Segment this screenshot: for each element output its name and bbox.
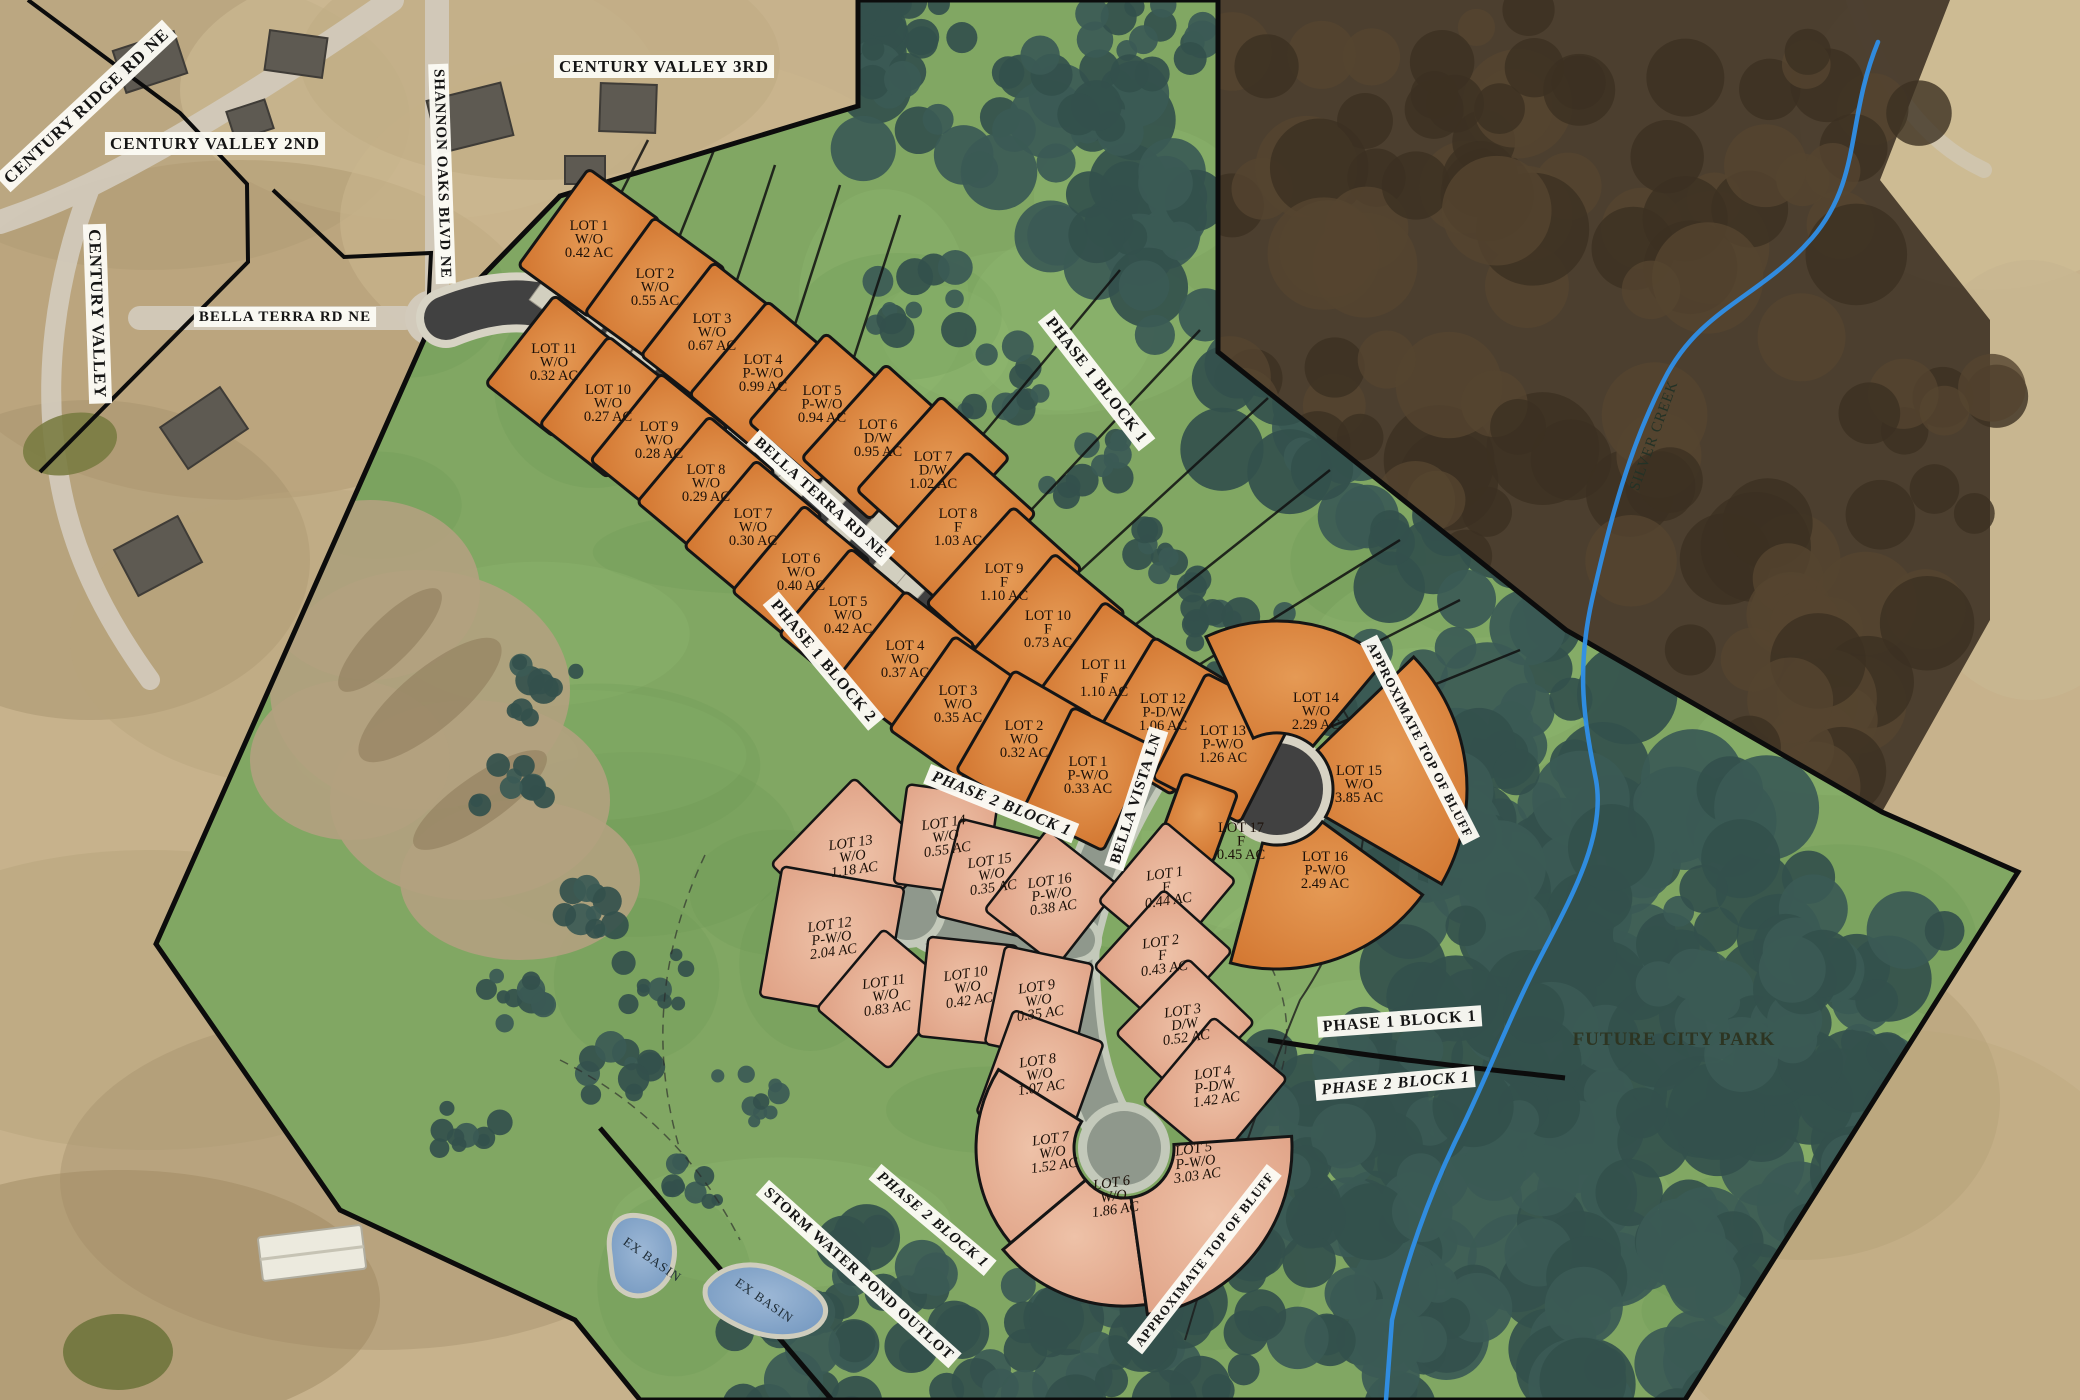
tree [961, 394, 987, 420]
tree [507, 703, 522, 718]
tree [738, 1066, 755, 1083]
lot-lot_area: 1.02 AC [909, 476, 957, 492]
tree [521, 708, 539, 726]
woods-blob [1665, 624, 1716, 675]
tree [905, 302, 922, 319]
tree [489, 969, 504, 984]
tree [1174, 42, 1207, 75]
lot-label-phase-2-block-1-lot-16: LOT 16P-W/O0.38 AC [1025, 870, 1078, 919]
tree [831, 116, 896, 181]
label-century-valley-3rd: CENTURY VALLEY 3RD [554, 55, 774, 78]
tree [1679, 865, 1727, 913]
tree [1129, 25, 1158, 54]
tree [447, 1128, 464, 1145]
tree [1855, 979, 1898, 1022]
tree [500, 776, 523, 799]
tree [585, 919, 605, 939]
lot-label-phase-1-block-1-lot-4: LOT 4P-W/O0.99 AC [739, 352, 787, 395]
lot-lot_area: 1.03 AC [934, 533, 982, 549]
lot-lot_area: 0.94 AC [798, 410, 846, 426]
tree [512, 655, 527, 670]
woods-blob [1490, 399, 1546, 455]
tree [1493, 749, 1539, 795]
woods-blob [1474, 83, 1525, 134]
tree [486, 753, 510, 777]
lot-lot_area: 0.32 AC [1000, 745, 1048, 761]
woods-blob [1646, 39, 1724, 117]
label-bella-terra-rd-west: BELLA TERRA RD NE [194, 307, 376, 327]
tree [1437, 570, 1496, 629]
tree [862, 38, 885, 61]
tree [1396, 1026, 1444, 1074]
lot-lot_area: 0.95 AC [854, 444, 902, 460]
label-text-bella-terra-rd-west: BELLA TERRA RD NE [199, 309, 371, 325]
lot-label-phase-1-block-1-lot-12: LOT 12P-D/W1.06 AC [1139, 691, 1187, 734]
tree [1925, 911, 1965, 951]
woods-blob [1410, 30, 1475, 95]
tree [1057, 93, 1099, 135]
tree [1074, 432, 1100, 458]
lot-label-phase-2-block-1-lot-12: LOT 12P-W/O2.04 AC [805, 914, 858, 963]
tree [1228, 1353, 1260, 1385]
tree [522, 971, 540, 989]
woods-blob [1920, 386, 1970, 436]
tree [497, 990, 510, 1003]
lot-lot_area: 0.99 AC [739, 379, 787, 395]
tree [1616, 1087, 1667, 1138]
tree [1091, 454, 1114, 477]
woods-blob [1552, 56, 1606, 110]
tree [1137, 517, 1163, 543]
label-text-century-valley-2nd: CENTURY VALLEY 2ND [110, 134, 320, 153]
lot-lot_area: 2.29 AC [1292, 717, 1340, 733]
house-footprint [599, 83, 657, 133]
tree [671, 997, 685, 1011]
lot-lot_area: 3.85 AC [1335, 790, 1383, 806]
tree [581, 1084, 601, 1104]
lot-lot_area: 0.55 AC [631, 293, 679, 309]
tree [1095, 1364, 1128, 1397]
tree [945, 290, 964, 309]
lot-lot_area: 0.35 AC [934, 710, 982, 726]
tree [1110, 54, 1148, 92]
tree [1392, 1181, 1453, 1242]
tree [938, 250, 973, 285]
tree [1138, 156, 1193, 211]
tree [1419, 1265, 1457, 1303]
woods-blob [1880, 576, 1975, 671]
map-canvas: LOT 1W/O0.42 ACLOT 2W/O0.55 ACLOT 3W/O0.… [0, 0, 2080, 1400]
woods-blob [1954, 493, 1995, 534]
tree [612, 951, 636, 975]
lot-lot_area: 1.10 AC [980, 588, 1028, 604]
tree [1325, 1267, 1377, 1319]
tree [896, 258, 933, 295]
tree [439, 1101, 454, 1116]
tree [1186, 633, 1204, 651]
lot-lot_area: 0.29 AC [682, 489, 730, 505]
tree [1184, 566, 1212, 594]
tree [1119, 260, 1170, 311]
lot-label-phase-1-block-2-lot-1: LOT 1P-W/O0.33 AC [1064, 754, 1112, 797]
tree [529, 674, 559, 704]
lot-lot_area: 0.37 AC [881, 665, 929, 681]
woods-blob [1462, 487, 1512, 537]
label-text-century-valley-3rd: CENTURY VALLEY 3RD [559, 57, 769, 76]
tree [1199, 599, 1226, 626]
tree [1759, 936, 1826, 1003]
tree [568, 664, 583, 679]
tree [768, 1078, 782, 1092]
tree [976, 343, 998, 365]
woods-blob [1785, 29, 1831, 75]
lot-lot_area: 0.33 AC [1064, 781, 1112, 797]
tree [1068, 207, 1124, 263]
tree [618, 994, 638, 1014]
tree [1020, 36, 1059, 75]
tree [992, 108, 1036, 152]
tree [903, 19, 939, 55]
tree [678, 960, 695, 977]
tree [1545, 1267, 1623, 1345]
woods-blob [1652, 222, 1763, 333]
tree [1368, 519, 1415, 566]
tree [962, 151, 999, 188]
tree [637, 984, 650, 997]
woods-blob [1758, 293, 1846, 381]
tree [513, 755, 535, 777]
tree [834, 1321, 876, 1363]
woods-blob [1442, 156, 1552, 266]
lot-lot_area: 0.40 AC [777, 578, 825, 594]
woods-blob [1846, 480, 1916, 550]
tree [666, 1153, 687, 1174]
lot-label-phase-1-block-1-lot-5: LOT 5P-W/O0.94 AC [798, 383, 846, 426]
woods-blob [1805, 204, 1907, 306]
woods-blob [1288, 21, 1356, 89]
tree [895, 1240, 949, 1294]
tree [1667, 1245, 1740, 1318]
woods-blob [1910, 464, 1960, 514]
tree [884, 61, 921, 98]
tree [553, 903, 576, 926]
woods-blob [1886, 80, 1951, 145]
tree [1249, 1306, 1280, 1337]
woods-blob [1838, 382, 1900, 444]
lot-lot_area: 0.42 AC [824, 621, 872, 637]
lot-lot_area: 0.30 AC [729, 533, 777, 549]
lot-lot_area: 1.10 AC [1080, 684, 1128, 700]
tree [946, 22, 977, 53]
house-footprint [264, 30, 327, 78]
tree [711, 1069, 724, 1082]
lot-label-phase-1-block-1-lot-16: LOT 16P-W/O2.49 AC [1301, 849, 1349, 892]
lot-lot_area: 0.27 AC [584, 409, 632, 425]
tree [1031, 384, 1050, 403]
label-future-city-park: FUTURE CITY PARK [1573, 1029, 1776, 1050]
tree [1135, 315, 1175, 355]
woods-blob [1724, 124, 1807, 207]
woods-blob [1279, 200, 1377, 298]
tree [595, 1031, 627, 1063]
woods-blob [1358, 331, 1416, 389]
woods-blob [1305, 337, 1365, 397]
lot-lot_area: 0.45 AC [1217, 847, 1265, 863]
tree [618, 1063, 649, 1094]
tree [1688, 985, 1723, 1020]
tree [495, 1014, 513, 1032]
lot-lot_area: 0.67 AC [688, 338, 736, 354]
tree [1445, 906, 1486, 947]
tree [880, 313, 915, 348]
label-century-valley-2nd: CENTURY VALLEY 2ND [105, 132, 325, 155]
lot-lot_area: 0.73 AC [1024, 635, 1072, 651]
tree [1694, 907, 1739, 952]
tree [694, 1166, 714, 1186]
lot-lot_area: 0.28 AC [635, 446, 683, 462]
tree [941, 312, 976, 347]
pond-existing-2 [63, 1314, 173, 1390]
tree [1160, 221, 1199, 260]
tree [748, 1115, 760, 1127]
site-plan-map: LOT 1W/O0.42 ACLOT 2W/O0.55 ACLOT 3W/O0.… [0, 0, 2080, 1400]
lot-lot_area: 1.26 AC [1199, 750, 1247, 766]
tree [661, 1174, 684, 1197]
lot-lot_area: 0.32 AC [530, 368, 578, 384]
lot-lot_area: 2.49 AC [1301, 876, 1349, 892]
tree [764, 1105, 778, 1119]
tree [1282, 1234, 1335, 1287]
tree [1158, 547, 1178, 567]
tree [468, 794, 491, 817]
label-text-future-city-park: FUTURE CITY PARK [1573, 1029, 1776, 1050]
tree [1002, 330, 1034, 362]
tree [519, 775, 545, 801]
woods-blob [1382, 151, 1450, 219]
lot-label-phase-1-block-1-lot-13: LOT 13P-W/O1.26 AC [1199, 723, 1247, 766]
lot-lot_area: 0.42 AC [565, 245, 613, 261]
woods-blob [1234, 34, 1298, 98]
tree [487, 1110, 513, 1136]
